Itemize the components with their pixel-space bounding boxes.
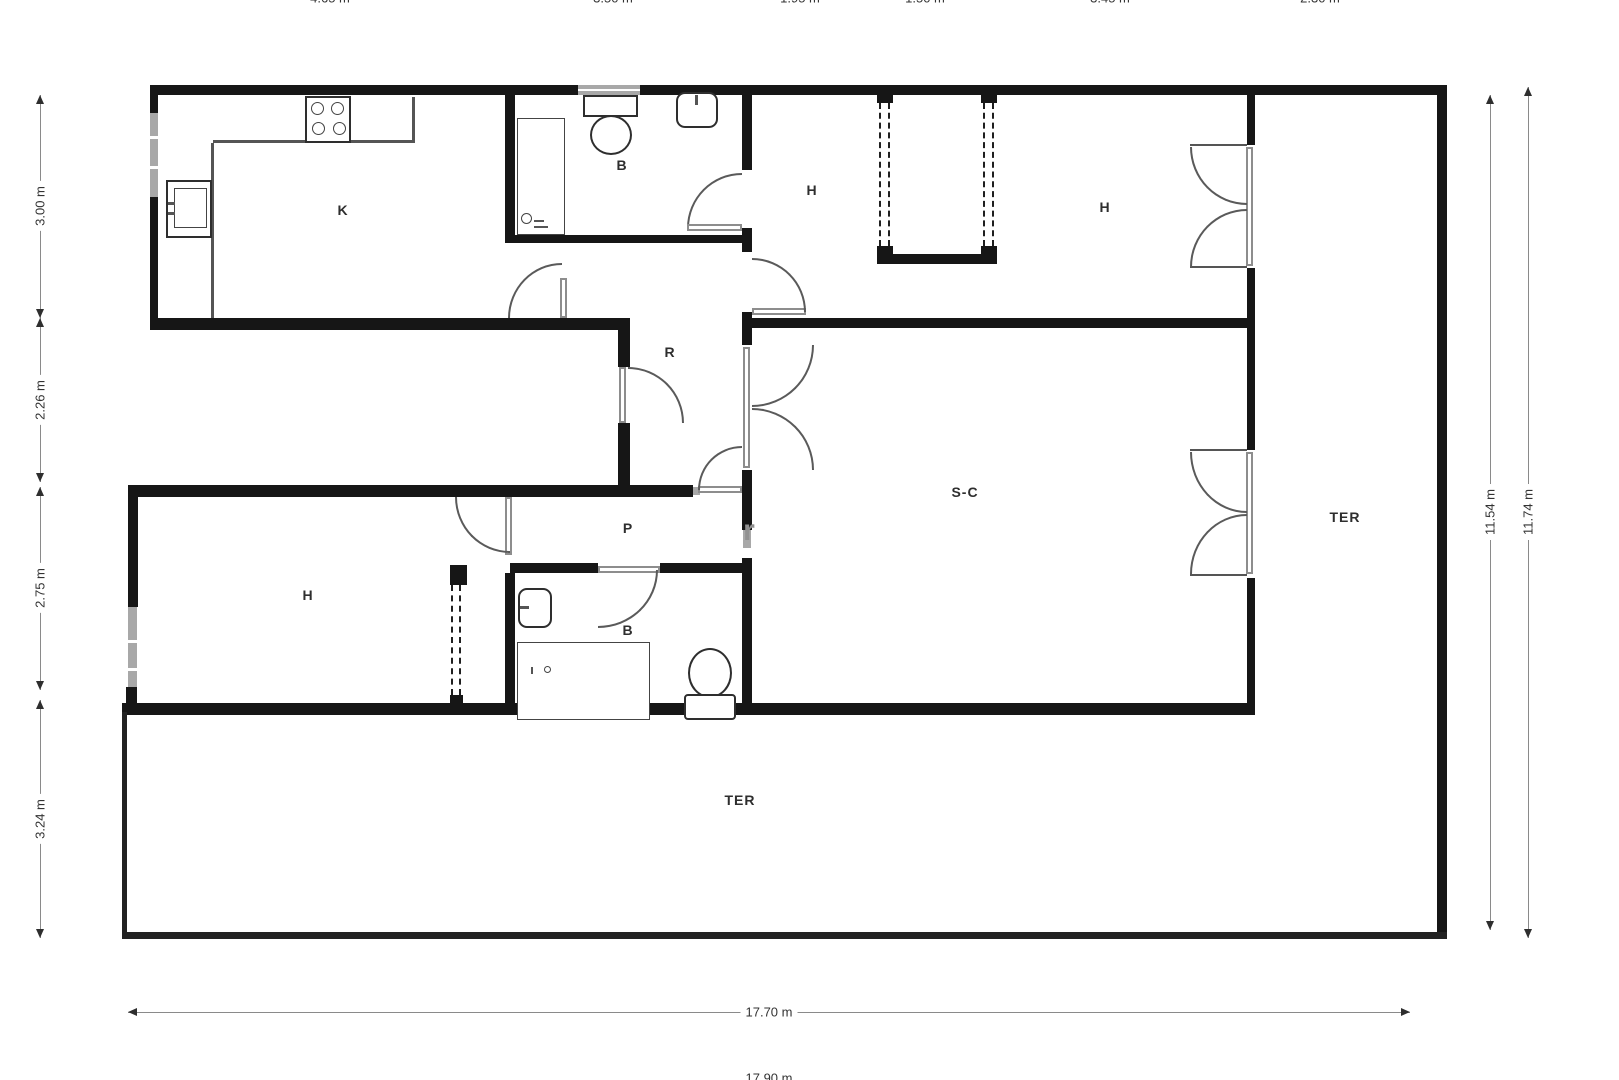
- dim-label-top-3: 1.95 m: [775, 0, 825, 6]
- dim-label-top-1: 4.65 m: [305, 0, 355, 6]
- dim-label-top-5: 3.45 m: [1085, 0, 1135, 6]
- door-arc-bath-top: [687, 173, 742, 228]
- window-pane-gap: [128, 668, 137, 671]
- wall-hall-west-a: [618, 330, 630, 367]
- terrace-bottom-edge: [122, 932, 1447, 939]
- arrowhead: [1486, 95, 1494, 104]
- floor-plan-canvas: K B H H R S-C TER P H B TER r 3.00 m 2.2…: [0, 0, 1619, 1080]
- room-label-hall: R: [664, 344, 675, 360]
- patio-dashed-right: [983, 103, 994, 246]
- wall-central-b: [742, 228, 752, 252]
- burner-icon: [333, 122, 346, 135]
- arrowhead: [36, 681, 44, 690]
- arrowhead: [1486, 921, 1494, 930]
- french-door-line: [1190, 144, 1247, 146]
- bathtub-drain-icon: [531, 667, 533, 674]
- wall-bath-bottom-top-a: [510, 563, 598, 573]
- dim-label-right-1: 11.54 m: [1483, 484, 1498, 540]
- wall-terrace-a: [1247, 95, 1255, 145]
- door-arc-hall-passage: [698, 446, 742, 490]
- arrowhead: [36, 473, 44, 482]
- french-door-arc: [1190, 209, 1247, 267]
- room-label-kitchen: K: [337, 202, 348, 218]
- burner-icon: [311, 102, 324, 115]
- wall-bath-top-bottom: [505, 235, 752, 243]
- wall-hall-west-b: [618, 423, 630, 485]
- toilet-bowl-icon: [590, 115, 632, 155]
- door-arc-entrance: [628, 367, 684, 423]
- bathtub-icon: [517, 642, 650, 720]
- dim-label-bottom-2: 17.90 m: [741, 1071, 798, 1080]
- wall-kitchen-left-a: [150, 95, 158, 113]
- dim-label-bottom-1: 17.70 m: [741, 1005, 798, 1020]
- door-leaf-entrance: [619, 367, 626, 423]
- kitchen-sink-basin: [174, 188, 207, 228]
- burner-icon: [312, 122, 325, 135]
- wall-terrace-c: [1247, 578, 1255, 703]
- arrowhead: [1401, 1008, 1410, 1016]
- arrowhead: [36, 487, 44, 496]
- dim-label-left-4: 3.24 m: [33, 794, 48, 844]
- window-pane-gap: [128, 640, 137, 643]
- wall-bath-top-west: [505, 93, 515, 243]
- wall-top-right: [640, 85, 1447, 95]
- french-door-line: [1190, 449, 1247, 451]
- arrowhead: [36, 318, 44, 327]
- wall-bath-bottom-west: [505, 573, 515, 703]
- wall-kitchen-bottom: [150, 318, 630, 330]
- window-pane-gap: [150, 166, 158, 169]
- room-label-bed-top-right: H: [1099, 199, 1110, 215]
- watermark-letter: r: [743, 514, 755, 548]
- patio-bottom-bar: [877, 254, 997, 264]
- patio-cap-tl: [877, 93, 893, 103]
- wall-outer-right: [1437, 87, 1447, 938]
- french-door-arc: [1190, 514, 1247, 574]
- shower-head-icon: [521, 213, 532, 224]
- door-arc-double-top: [752, 345, 814, 407]
- wall-bath-bottom-top-b: [660, 563, 742, 573]
- wall-closet-cap: [450, 565, 467, 585]
- arrowhead: [1524, 929, 1532, 938]
- window-kitchen-left: [150, 113, 158, 197]
- shower-spray-icon: [534, 226, 548, 228]
- room-label-bath-bottom: B: [622, 622, 633, 638]
- wall-central-e: [742, 558, 752, 703]
- door-leaf-kitchen: [560, 278, 567, 318]
- dim-label-left-1: 3.00 m: [33, 181, 48, 231]
- wall-bed-bottom-left-b: [126, 687, 137, 703]
- french-door-arc: [1190, 452, 1247, 513]
- window-bed-bottom: [128, 607, 137, 687]
- basin-tap-icon: [520, 606, 529, 609]
- french-door-arc: [1190, 147, 1247, 205]
- toilet-bowl-icon: [688, 648, 732, 698]
- door-leaf-bath-top: [687, 224, 742, 231]
- window-pane-gap: [578, 89, 640, 91]
- wall-central-c: [742, 312, 752, 345]
- room-label-living: S-C: [951, 484, 978, 500]
- arrowhead: [36, 309, 44, 318]
- door-arc-kitchen: [508, 263, 562, 318]
- room-label-bed-bottom: H: [302, 587, 313, 603]
- patio-cap-tr: [981, 93, 997, 103]
- door-leaf-double-living: [743, 347, 750, 468]
- bathtub-drain-icon: [544, 666, 551, 673]
- arrowhead: [36, 929, 44, 938]
- dim-label-left-2: 2.26 m: [33, 375, 48, 425]
- closet-dashed-front: [451, 585, 461, 695]
- arrowhead: [128, 1008, 137, 1016]
- arrowhead: [36, 700, 44, 709]
- counter-edge: [412, 97, 415, 143]
- patio-dashed-left: [879, 103, 890, 246]
- door-arc-bed-top: [752, 258, 806, 312]
- dim-label-left-3: 2.75 m: [33, 563, 48, 613]
- window-pane-gap: [150, 136, 158, 139]
- dim-label-top-4: 1.50 m: [900, 0, 950, 6]
- terrace-left-edge: [122, 712, 127, 938]
- wall-kitchen-left-b: [150, 197, 158, 318]
- room-label-passage: P: [623, 520, 633, 536]
- toilet-cistern-icon: [583, 95, 638, 117]
- room-label-terrace-bottom: TER: [725, 792, 756, 808]
- closet-cap-bottom: [450, 695, 463, 704]
- basin-tap-icon: [695, 95, 698, 105]
- kitchen-tap-icon: [168, 202, 175, 205]
- wall-living-top: [742, 318, 1247, 328]
- dim-label-top-6: 2.30 m: [1295, 0, 1345, 6]
- room-label-bed-top: H: [806, 182, 817, 198]
- arrowhead: [1524, 87, 1532, 96]
- toilet-base-icon: [684, 694, 736, 720]
- french-door-leaf-living: [1246, 452, 1253, 574]
- dim-label-right-2: 11.74 m: [1521, 484, 1536, 540]
- wall-central-a: [742, 93, 752, 170]
- dim-label-top-2: 3.50 m: [588, 0, 638, 6]
- door-arc-double-bottom: [752, 408, 814, 470]
- kitchen-tap-icon: [168, 212, 175, 215]
- room-label-bath-top: B: [616, 157, 627, 173]
- french-door-line: [1190, 574, 1247, 576]
- door-arc-bath-bottom: [598, 570, 658, 628]
- burner-icon: [331, 102, 344, 115]
- arrowhead: [36, 95, 44, 104]
- french-door-leaf-bed: [1246, 147, 1253, 266]
- wall-passage-north: [128, 485, 693, 497]
- shower-spray-icon: [534, 220, 544, 222]
- room-label-terrace-right: TER: [1330, 509, 1361, 525]
- door-arc-bed-bottom: [455, 497, 510, 553]
- wall-bed-bottom-left-a: [128, 497, 138, 607]
- wall-terrace-b: [1247, 268, 1255, 450]
